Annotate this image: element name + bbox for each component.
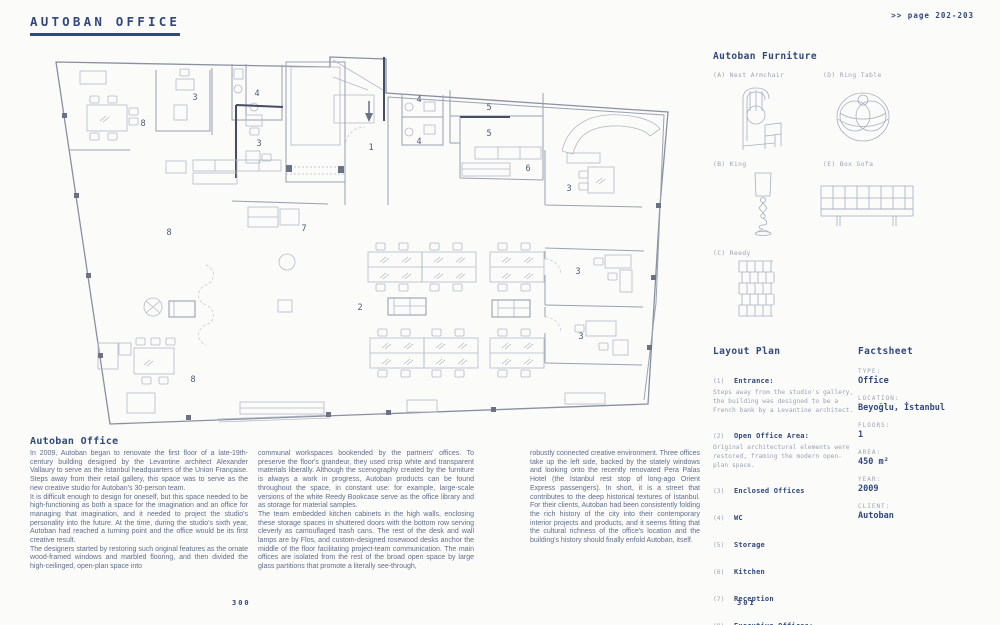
page-number-right: 301 — [737, 599, 756, 607]
plan-room-label: 2 — [357, 303, 362, 313]
reedy-bookcase-drawing — [738, 260, 776, 322]
furniture-item-label: (A) Nest Armchair — [713, 72, 784, 79]
plan-room-label: 8 — [166, 228, 171, 238]
plan-room-label: 5 — [486, 103, 491, 113]
plan-room-label: 3 — [566, 184, 571, 194]
article-heading: Autoban Office — [30, 436, 119, 447]
plan-room-label: 3 — [575, 267, 580, 277]
plan-room-label: 1 — [368, 143, 373, 153]
plan-room-label: 5 — [486, 129, 491, 139]
layout-plan-entry: (6) Kitchen — [713, 559, 855, 578]
furniture-item-label: (E) Box Sofa — [823, 161, 873, 168]
factsheet-heading: Factsheet — [858, 346, 913, 357]
furniture-item-label: (C) Reedy — [713, 250, 751, 257]
plan-room-label: 8 — [190, 375, 195, 385]
layout-plan-entry: (1) Entrance: Steps away from the studio… — [713, 368, 855, 415]
page-title: AUTOBAN OFFICE — [30, 14, 180, 36]
layout-plan-entry: (4) WC — [713, 505, 855, 524]
layout-plan-entry: (7) Reception — [713, 586, 855, 605]
factsheet-field: TYPE: Office — [858, 368, 988, 386]
article-column-3: robustly connected creative environment.… — [530, 450, 700, 546]
plan-room-label: 7 — [301, 224, 306, 234]
furniture-item-label: (D) Ring Table — [823, 72, 882, 79]
plan-room-label: 4 — [416, 95, 421, 105]
nest-armchair-drawing — [732, 85, 784, 151]
floor-plan: 8 3 4 3 1 4 4 5 5 6 3 7 8 2 3 3 8 — [28, 55, 693, 430]
page-cross-reference[interactable]: >> page 202-203 — [891, 11, 974, 20]
layout-plan-entry: (8) Executive Offices: Fronted by large … — [713, 613, 855, 625]
layout-plan-entry: (3) Enclosed Offices — [713, 478, 855, 497]
plan-room-label: 6 — [525, 164, 530, 174]
furniture-heading: Autoban Furniture — [713, 51, 817, 62]
layout-plan-entry: (2) Open Office Area: Original architect… — [713, 423, 855, 470]
article-column-1: In 2009, Autoban began to renovate the f… — [30, 450, 248, 572]
factsheet-field: AREA: 450 m² — [858, 449, 988, 467]
layout-plan-entry: (5) Storage — [713, 532, 855, 551]
page-number-left: 300 — [232, 599, 251, 607]
factsheet-field: LOCATION: Beyoğlu, İstanbul — [858, 395, 988, 413]
king-lamp-drawing — [748, 172, 778, 236]
book-spread: AUTOBAN OFFICE >> page 202-203 — [0, 0, 1000, 625]
plan-room-label: 8 — [140, 119, 145, 129]
furniture-item-label: (B) King — [713, 161, 747, 168]
plan-room-label: 3 — [192, 93, 197, 103]
factsheet-field: FLOORS: 1 — [858, 422, 988, 440]
layout-plan-list: (1) Entrance: Steps away from the studio… — [713, 368, 855, 625]
ring-table-drawing — [834, 91, 892, 143]
plan-room-label: 3 — [578, 332, 583, 342]
plan-room-label: 3 — [256, 139, 261, 149]
plan-room-label: 4 — [254, 89, 259, 99]
layout-plan-heading: Layout Plan — [713, 346, 780, 357]
factsheet-field: YEAR: 2009 — [858, 476, 988, 494]
plan-room-label: 4 — [416, 137, 421, 147]
box-sofa-drawing — [820, 180, 914, 228]
factsheet: TYPE: Office LOCATION: Beyoğlu, İstanbul… — [858, 368, 988, 530]
article-column-2: communal workspaces bookended by the par… — [258, 450, 474, 572]
factsheet-field: CLIENT: Autoban — [858, 503, 988, 521]
